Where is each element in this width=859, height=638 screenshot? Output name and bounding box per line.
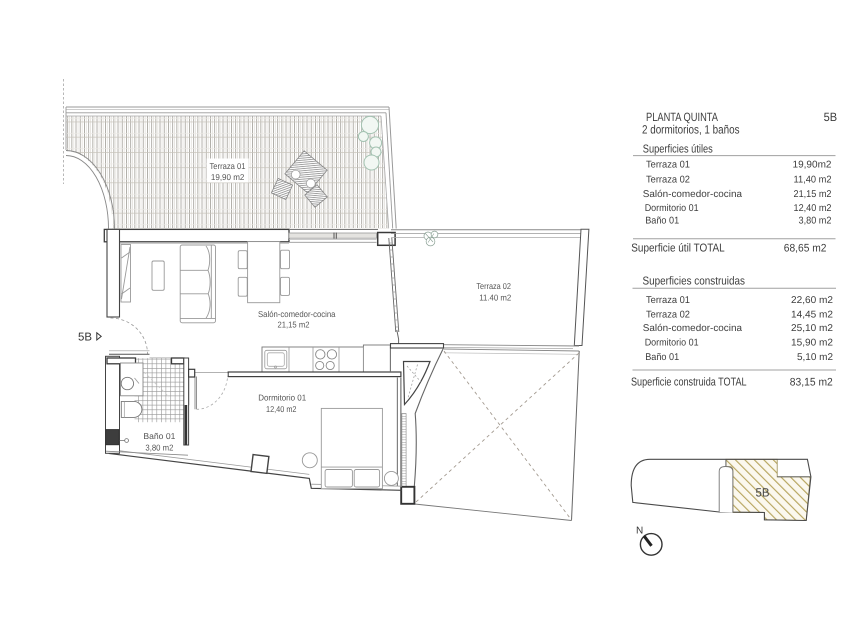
- svg-text:5B: 5B: [756, 486, 770, 500]
- svg-text:5B: 5B: [824, 110, 838, 124]
- svg-text:12,40 m2: 12,40 m2: [266, 404, 297, 414]
- svg-text:Terraza 02: Terraza 02: [646, 174, 690, 185]
- svg-text:2 dormitorios, 1 baños: 2 dormitorios, 1 baños: [642, 123, 740, 137]
- svg-text:Salón-comedor-cocina: Salón-comedor-cocina: [643, 189, 743, 200]
- svg-text:11.40 m2: 11.40 m2: [479, 293, 511, 303]
- svg-text:21,15 m2: 21,15 m2: [278, 320, 310, 330]
- svg-text:15,90 m2: 15,90 m2: [791, 338, 833, 349]
- svg-text:Terraza 02: Terraza 02: [476, 281, 511, 291]
- svg-text:Dormitorio 01: Dormitorio 01: [645, 338, 699, 349]
- svg-text:N: N: [636, 526, 643, 537]
- svg-text:Dormitorio 01: Dormitorio 01: [645, 203, 699, 214]
- svg-text:Terraza 01: Terraza 01: [210, 161, 246, 171]
- svg-text:Salón-comedor-cocina: Salón-comedor-cocina: [258, 309, 336, 319]
- svg-text:5,10 m2: 5,10 m2: [797, 352, 833, 363]
- svg-text:19,90 m2: 19,90 m2: [211, 172, 245, 182]
- svg-text:Baño 01: Baño 01: [143, 431, 175, 441]
- svg-text:Baño 01: Baño 01: [645, 216, 679, 227]
- svg-text:25,10 m2: 25,10 m2: [791, 323, 833, 334]
- svg-text:Terraza 01: Terraza 01: [646, 160, 690, 171]
- svg-text:Salón-comedor-cocina: Salón-comedor-cocina: [643, 323, 743, 334]
- svg-text:Dormitorio 01: Dormitorio 01: [258, 393, 306, 403]
- svg-text:3,80 m2: 3,80 m2: [799, 216, 832, 227]
- svg-text:12,40 m2: 12,40 m2: [794, 203, 832, 214]
- svg-text:Terraza 02: Terraza 02: [646, 309, 690, 320]
- svg-text:Superficie útil TOTAL: Superficie útil TOTAL: [631, 243, 725, 255]
- svg-text:21,15 m2: 21,15 m2: [794, 189, 832, 200]
- svg-text:Terraza 01: Terraza 01: [646, 295, 690, 306]
- svg-text:22,60 m2: 22,60 m2: [791, 295, 833, 306]
- svg-text:83,15 m2: 83,15 m2: [790, 377, 833, 389]
- svg-text:5B: 5B: [78, 332, 92, 344]
- svg-text:68,65 m2: 68,65 m2: [784, 243, 827, 255]
- svg-text:Baño 01: Baño 01: [645, 352, 679, 363]
- svg-text:Superficies construidas: Superficies construidas: [643, 276, 746, 288]
- svg-text:3,80 m2: 3,80 m2: [145, 442, 173, 452]
- svg-text:19,90m2: 19,90m2: [793, 160, 832, 171]
- svg-text:Superficie construida TOTAL: Superficie construida TOTAL: [631, 377, 747, 389]
- svg-text:Superficies útiles: Superficies útiles: [643, 143, 713, 155]
- svg-text:11,40 m2: 11,40 m2: [794, 174, 832, 185]
- svg-text:14,45 m2: 14,45 m2: [791, 309, 833, 320]
